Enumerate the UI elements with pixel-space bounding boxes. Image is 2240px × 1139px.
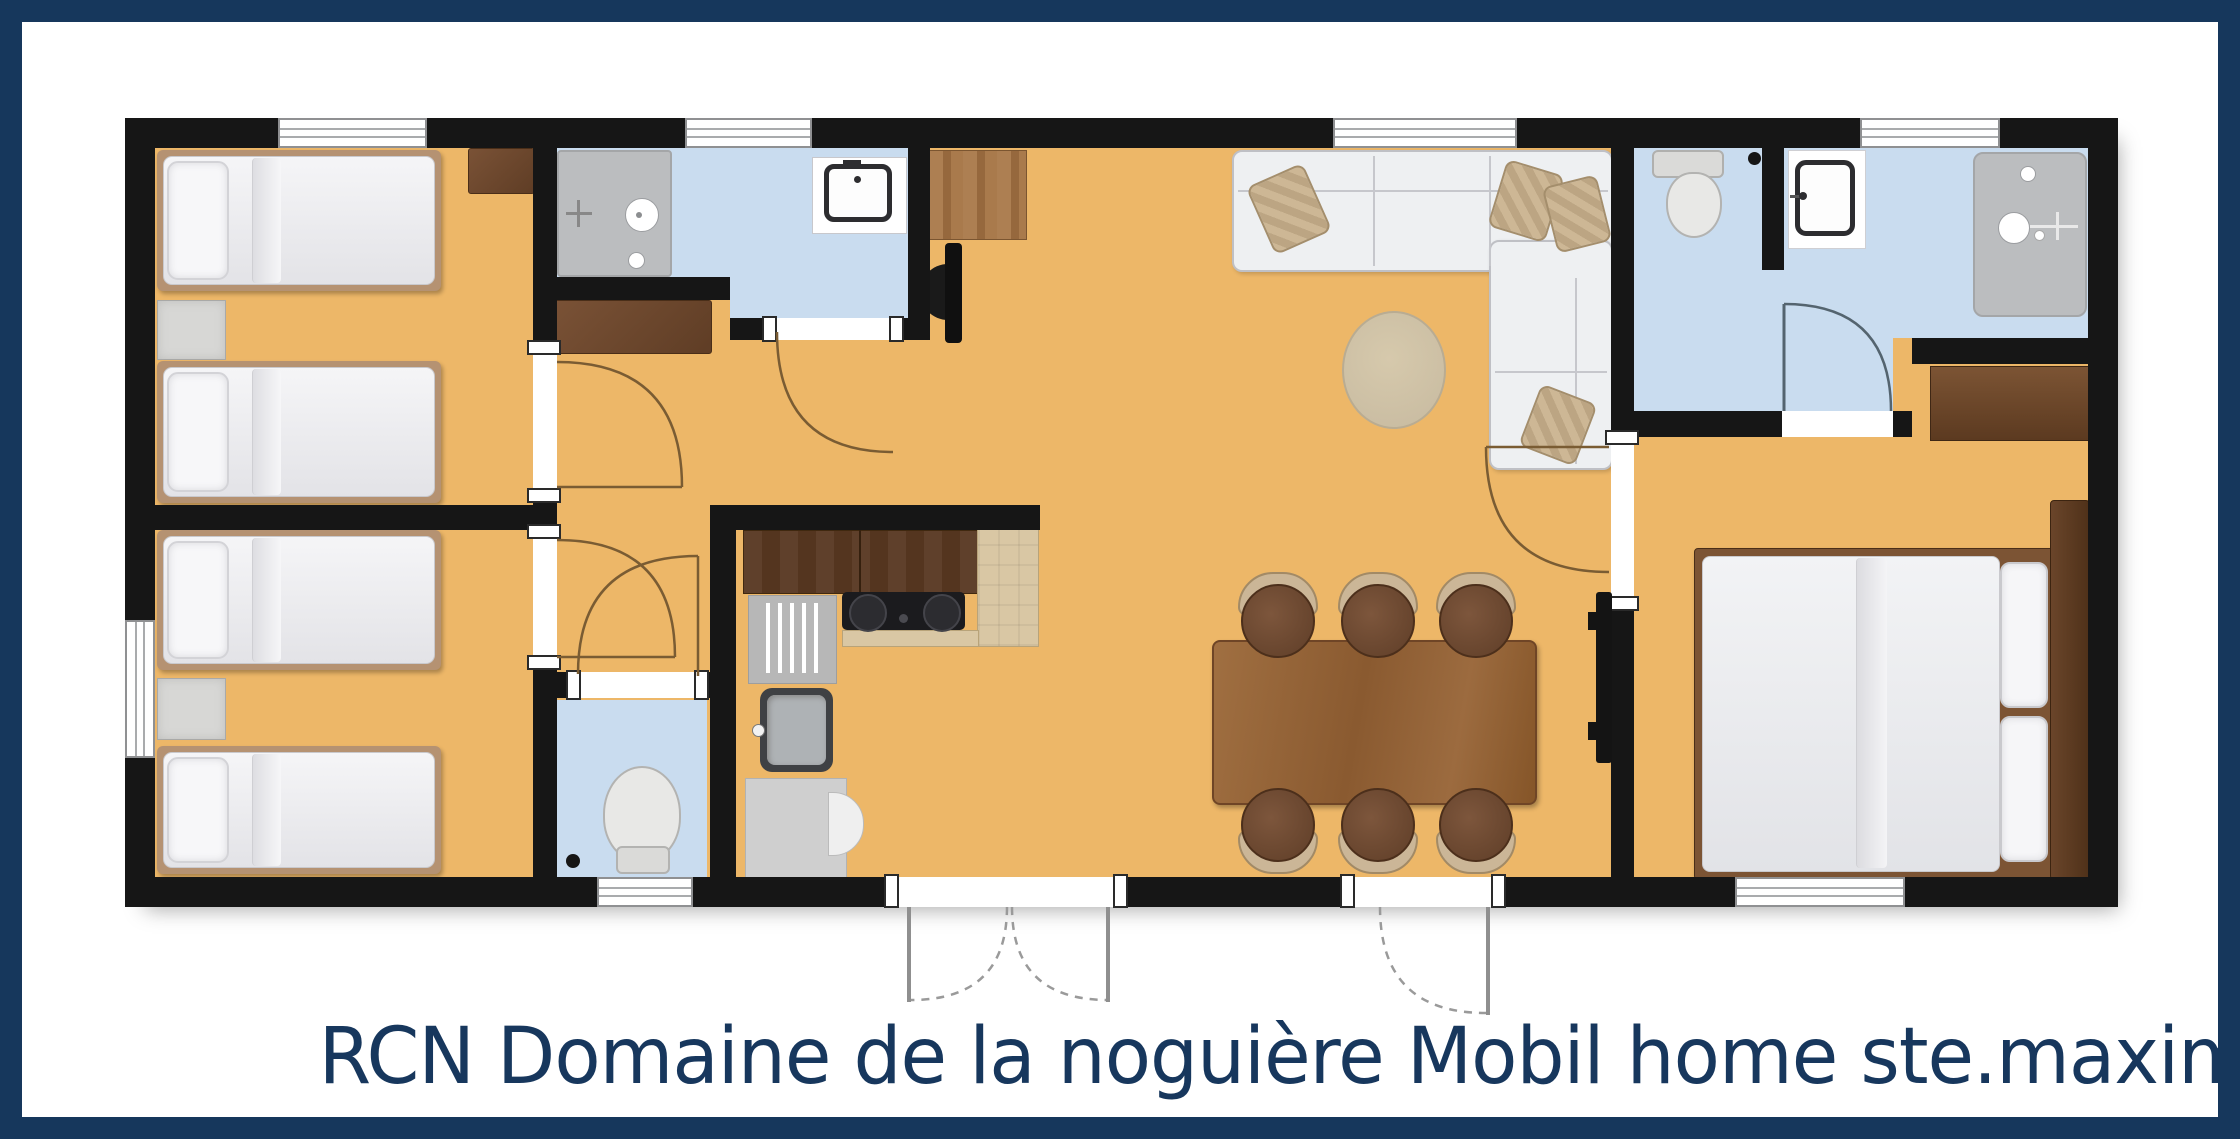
window-living xyxy=(1333,118,1517,148)
window-shower-room xyxy=(685,118,812,148)
floorplan-image: RCN Domaine de la noguière Mobil home st… xyxy=(0,0,2240,1139)
jamb xyxy=(762,316,777,342)
jamb xyxy=(527,488,561,503)
window-wc xyxy=(597,877,693,907)
wall-between-bedrooms xyxy=(155,505,533,530)
window-master-bedroom xyxy=(1735,877,1905,907)
door-arc-french-right xyxy=(1012,907,1108,1000)
door-arc-entrance xyxy=(1380,907,1486,1013)
jamb xyxy=(527,524,561,539)
jamb xyxy=(1113,874,1128,908)
doorway-french-doors xyxy=(892,877,1120,907)
wall-shower-south-left xyxy=(557,277,730,300)
wall-bedrooms-hall xyxy=(533,148,557,877)
jamb xyxy=(1340,874,1355,908)
wall-left xyxy=(125,118,155,907)
doorway-bathroom xyxy=(1782,411,1893,437)
doorway-master-bedroom xyxy=(1611,443,1634,600)
door-arc-french-left xyxy=(911,907,1007,1000)
doorway-wc xyxy=(578,672,698,698)
wall-bathroom-south-left xyxy=(1634,411,1782,437)
jamb xyxy=(1491,874,1506,908)
jamb xyxy=(566,670,581,700)
window-bathroom xyxy=(1860,118,2000,148)
wall-tv-mount xyxy=(1588,612,1598,630)
jamb xyxy=(694,670,709,700)
jamb xyxy=(884,874,899,908)
wall-shower-east xyxy=(908,148,930,340)
jamb xyxy=(1605,430,1639,445)
doorway-bedroom-1 xyxy=(533,353,557,490)
window-bedroom2-left xyxy=(125,620,155,758)
wall-tv xyxy=(1596,592,1612,763)
doorway-shower-room xyxy=(775,318,893,340)
wall-kitchen-north xyxy=(710,505,1040,530)
jamb xyxy=(527,655,561,670)
window-bedroom1 xyxy=(278,118,427,148)
doorway-entrance xyxy=(1347,877,1498,907)
wall-bathroom-south-post xyxy=(1893,411,1912,437)
wall-bathroom-south-right xyxy=(1912,338,2088,364)
wall-right xyxy=(2088,118,2118,907)
caption-title: RCN Domaine de la noguière Mobil home st… xyxy=(319,1012,2172,1102)
wall-tv-mount xyxy=(1588,722,1598,740)
jamb xyxy=(889,316,904,342)
jamb xyxy=(527,340,561,355)
doorway-bedroom-2 xyxy=(533,538,557,658)
wall-bathroom-stub xyxy=(1762,148,1784,270)
